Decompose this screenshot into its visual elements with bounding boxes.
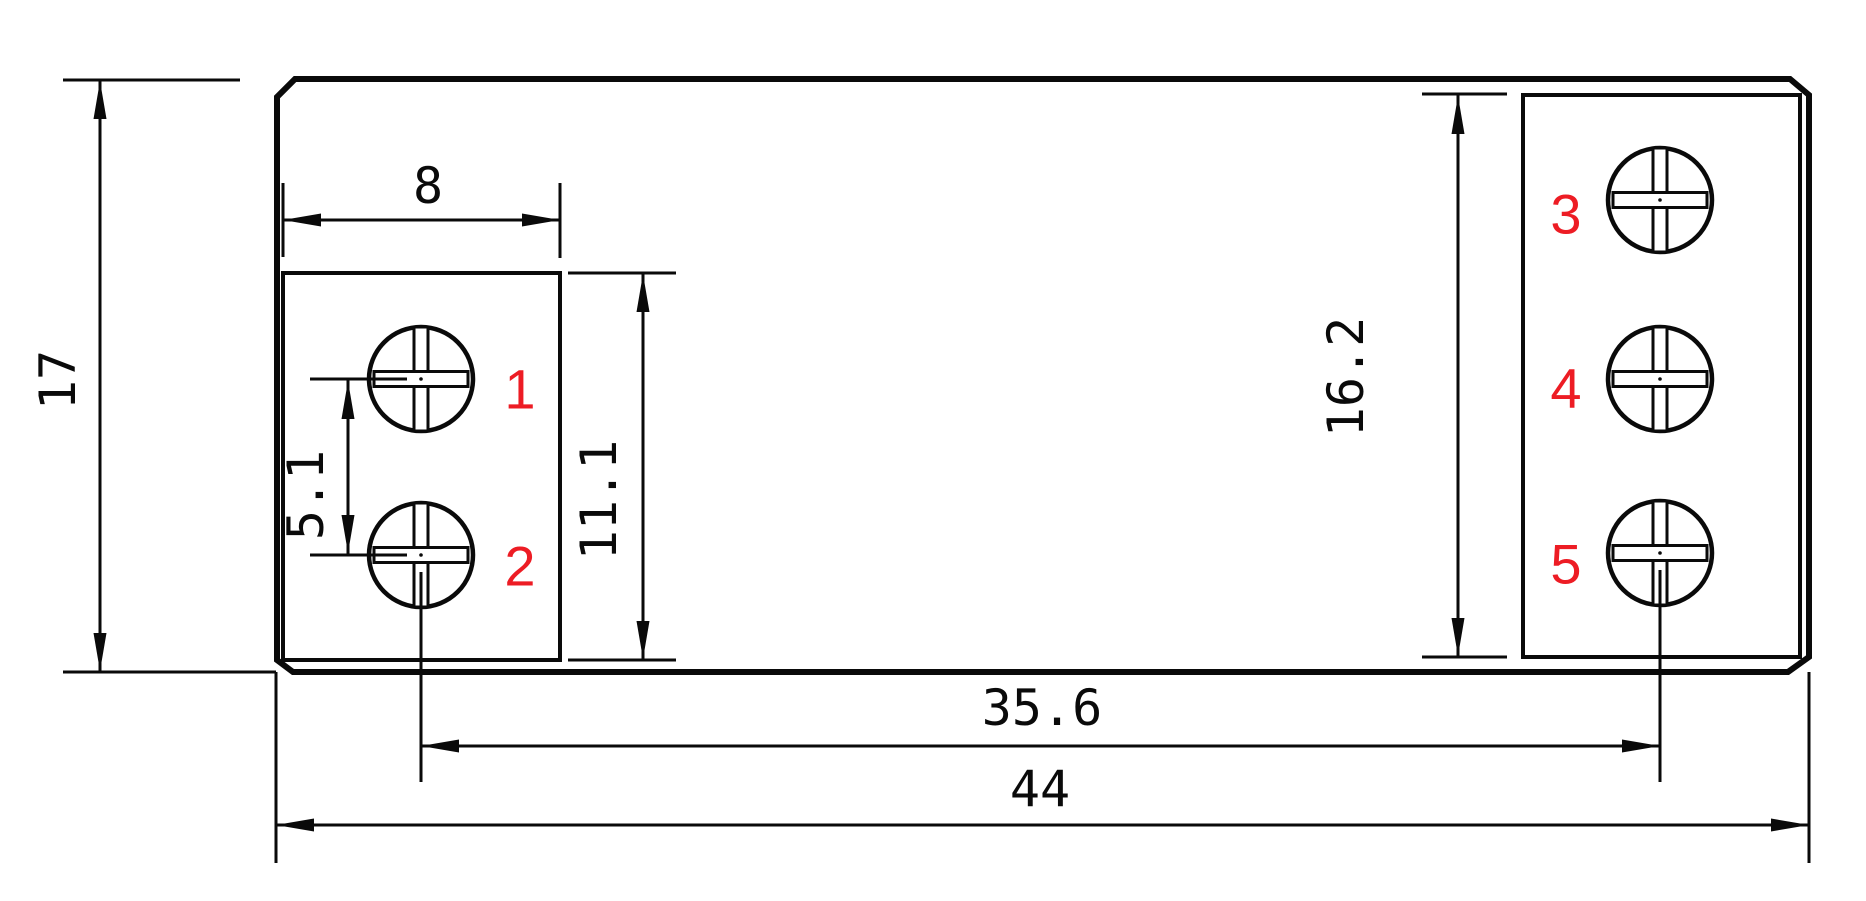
dimension-value: 8 bbox=[413, 157, 443, 215]
screw-center-mark bbox=[419, 377, 423, 381]
screw-center-mark bbox=[1658, 551, 1662, 555]
terminal-number-4: 4 bbox=[1550, 357, 1581, 420]
dimension-overall-height: 17 bbox=[29, 80, 276, 672]
arrowhead-up bbox=[94, 81, 107, 119]
arrowhead-down bbox=[94, 633, 107, 671]
terminal-number-1: 1 bbox=[504, 358, 535, 421]
dimension-value: 11.1 bbox=[570, 440, 628, 560]
terminal-number-2: 2 bbox=[504, 535, 535, 598]
arrowhead-left bbox=[276, 819, 314, 832]
dimension-drawing: 17 8 5.1 11.1 16.2 bbox=[0, 0, 1866, 901]
dimension-value: 5.1 bbox=[277, 450, 335, 540]
arrowhead-right bbox=[1771, 819, 1809, 832]
screw-terminal-3 bbox=[1608, 148, 1712, 252]
screw-terminal-4 bbox=[1608, 327, 1712, 431]
screw-center-mark bbox=[1658, 377, 1662, 381]
screw-center-mark bbox=[419, 553, 423, 557]
dimension-value: 16.2 bbox=[1317, 317, 1375, 437]
screw-center-mark bbox=[1658, 198, 1662, 202]
terminal-number-5: 5 bbox=[1550, 533, 1581, 596]
dimension-value: 35.6 bbox=[982, 679, 1102, 737]
dimension-value: 17 bbox=[29, 350, 87, 410]
dimension-value: 44 bbox=[1010, 760, 1070, 818]
arrowhead-left bbox=[421, 740, 459, 753]
drawing-canvas: 17 8 5.1 11.1 16.2 bbox=[0, 0, 1866, 901]
terminal-number-3: 3 bbox=[1550, 183, 1581, 246]
arrowhead-right bbox=[1622, 740, 1660, 753]
